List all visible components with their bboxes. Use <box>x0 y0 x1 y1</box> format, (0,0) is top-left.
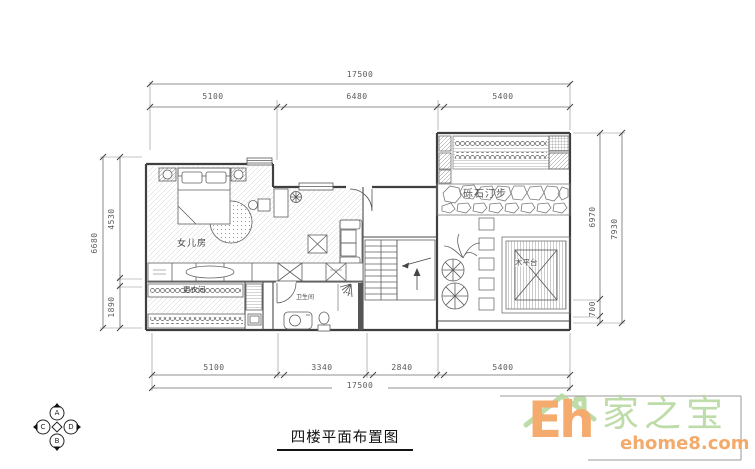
terrace <box>437 136 570 313</box>
dim-left-seg-1: 4530 <box>107 189 117 249</box>
dim-bottom-seg-3: 2840 <box>372 363 432 373</box>
dim-top-seg-1: 5100 <box>183 92 243 102</box>
plant-icon <box>291 192 302 203</box>
table-icon <box>258 199 270 211</box>
dim-top-seg-3: 5400 <box>473 92 533 102</box>
bathtub-icon <box>284 312 312 329</box>
bed-icon <box>178 168 230 224</box>
stair-arrow-icon <box>402 258 431 290</box>
watermark-logo: Eh 家之宝 ehome8.com <box>520 383 755 469</box>
shower-icon <box>340 284 352 297</box>
compass-letter-b: B <box>52 437 62 445</box>
dim-bottom-seg-4: 5400 <box>473 363 533 373</box>
tree-icon <box>442 234 480 309</box>
drawing-title: 四楼平面布置图 <box>272 426 418 451</box>
cabinet-strip-icon <box>148 263 363 281</box>
compass-logo: A B C D <box>33 403 81 451</box>
toilet-icon <box>318 312 330 331</box>
laundry-strip-icon <box>246 284 262 325</box>
watermark-brand-cn: 家之宝 <box>602 395 728 432</box>
watermark-eh-text: Eh <box>528 395 592 445</box>
dim-bottom-seg-2: 3340 <box>292 363 352 373</box>
floor-plan-sheet: 17500 5100 6480 5400 5100 3340 2840 5400… <box>0 0 755 469</box>
door-swing-icon <box>277 283 296 303</box>
dim-bottom-seg-1: 5100 <box>184 363 244 373</box>
dim-right-seg-1: 6970 <box>588 187 598 247</box>
dim-bottom-total: 17500 <box>332 381 388 391</box>
planter-boxes-icon <box>479 218 494 310</box>
dim-left-seg-2: 1890 <box>107 277 117 337</box>
room-label-wood-deck: 木平台 <box>515 259 538 267</box>
watermark-site-url: ehome8.com <box>620 435 750 453</box>
x-table-icon <box>308 235 327 253</box>
dim-left-total: 6680 <box>90 213 100 273</box>
room-label-daughter-room: 女儿房 <box>177 240 207 249</box>
pergola-icon <box>439 136 569 183</box>
compass-letter-c: C <box>38 423 48 431</box>
dim-right-total: 7930 <box>610 199 620 259</box>
bathroom-fixtures <box>277 283 352 331</box>
sofa-icon <box>340 220 362 266</box>
dim-right-seg-2: 700 <box>588 279 598 339</box>
wood-deck-icon <box>502 237 570 313</box>
dim-top-seg-2: 6480 <box>327 92 387 102</box>
room-label-bathroom: 卫生间 <box>296 295 314 301</box>
desk-icon <box>274 189 288 217</box>
dim-top-total: 17500 <box>330 70 390 80</box>
room-label-dressing-room: 更衣间 <box>183 286 206 294</box>
room-label-gravel-path: 砾石汀步 <box>463 190 507 200</box>
title-underline <box>277 449 413 451</box>
compass-letter-d: D <box>66 423 76 431</box>
chair-icon <box>249 201 258 210</box>
stairs <box>365 240 435 300</box>
drawing-title-text: 四楼平面布置图 <box>291 430 400 446</box>
compass-letter-a: A <box>52 409 62 417</box>
